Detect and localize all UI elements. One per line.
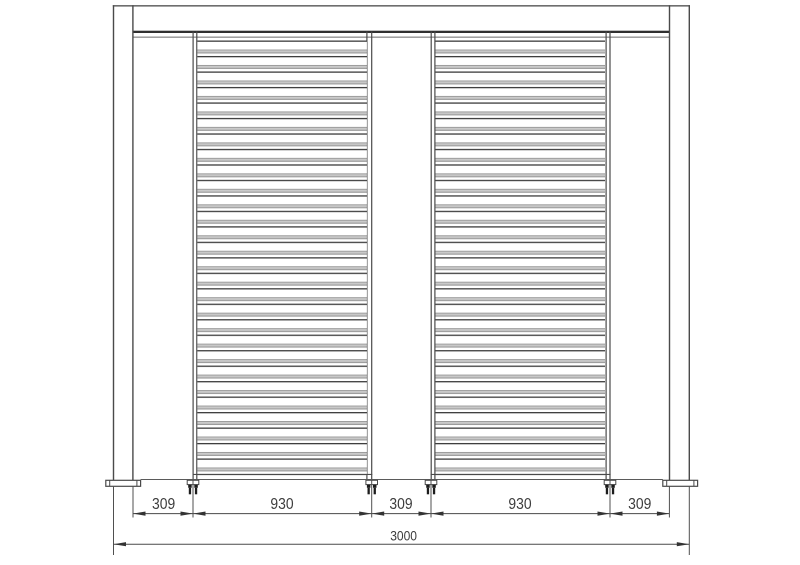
svg-text:930: 930 (508, 496, 531, 513)
svg-text:309: 309 (389, 496, 412, 513)
svg-text:309: 309 (628, 496, 651, 513)
svg-text:3000: 3000 (390, 528, 417, 544)
svg-text:309: 309 (152, 496, 175, 513)
svg-text:930: 930 (270, 496, 293, 513)
